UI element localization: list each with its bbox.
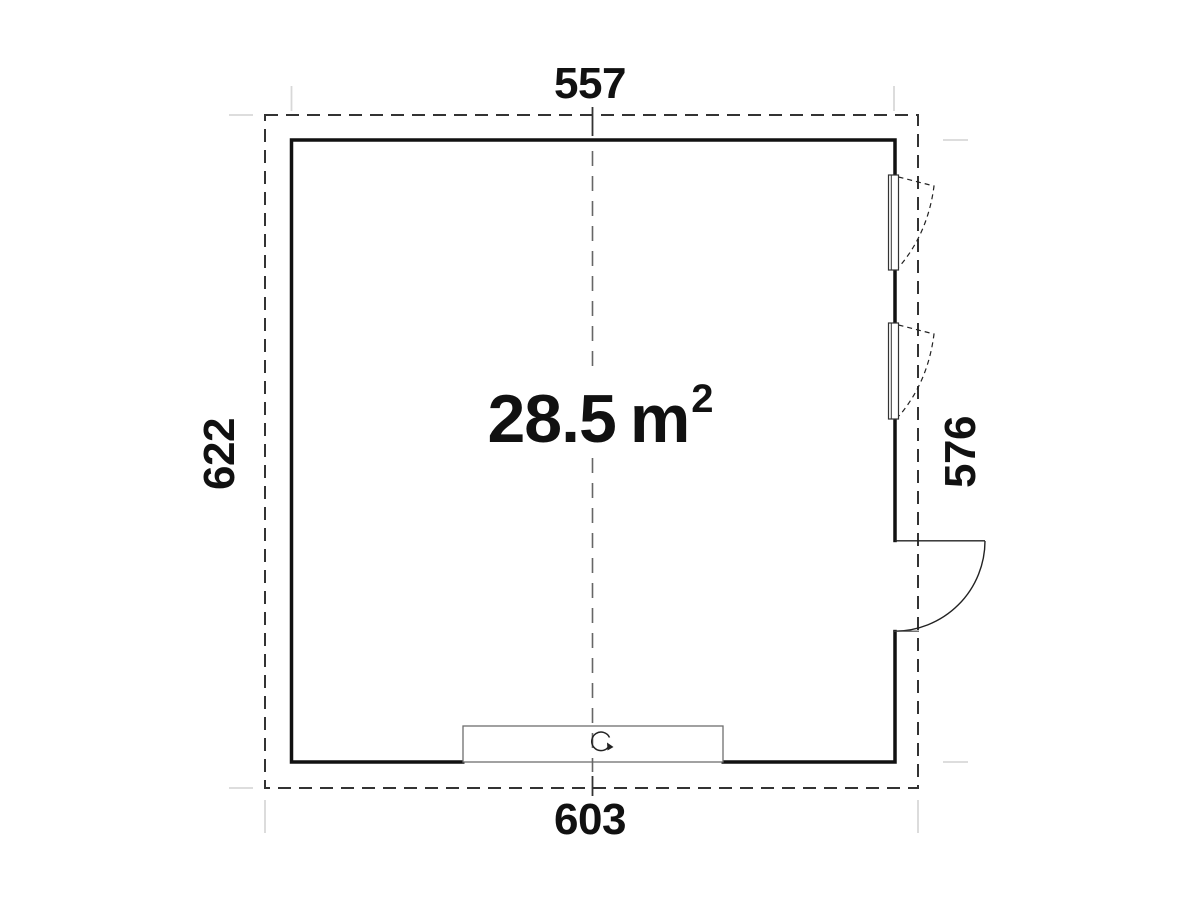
area-label: 28.5m2	[477, 375, 722, 457]
window-2	[889, 323, 935, 419]
area-exponent: 2	[691, 377, 712, 421]
window-1-frame	[889, 175, 899, 270]
window-1	[889, 175, 935, 270]
extension-lines	[229, 86, 968, 833]
window-2-swing-arc	[899, 325, 935, 416]
dimension-label-top: 557	[554, 62, 626, 106]
door-opening-mask	[892, 542, 898, 630]
dimension-label-bottom: 603	[554, 798, 626, 842]
door-swing-arc	[895, 541, 986, 631]
window-1-swing-arc	[899, 177, 935, 267]
window-2-frame	[889, 323, 899, 419]
dimension-label-right: 576	[939, 416, 983, 488]
entry-door	[892, 541, 985, 631]
area-unit: m	[630, 381, 689, 457]
area-value: 28.5	[487, 381, 615, 457]
dimension-label-left: 622	[198, 418, 242, 490]
floor-plan-canvas: 557 603 622 576 28.5m2	[0, 0, 1200, 900]
